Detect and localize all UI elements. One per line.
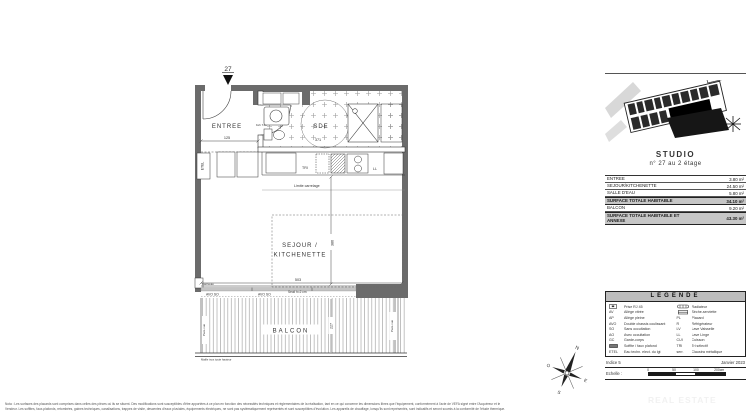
scale-segment [648, 372, 675, 376]
area-value: 24.50 m² [727, 184, 744, 189]
sde-room-label: SDE [313, 124, 328, 130]
watermark: REAL ESTATE [648, 396, 748, 405]
rj45-icon [609, 304, 624, 309]
legend-abbr: R [677, 322, 692, 326]
sejour-label-line2: KITCHENETTE [274, 253, 327, 259]
legend-body: Prise RJ 45 AV Allège vitrée AP Allège p… [606, 302, 745, 356]
left-service-units [195, 152, 258, 288]
legend-label: Placard [692, 316, 745, 320]
compass-n: N [574, 345, 580, 352]
scale-row: Echelle : 0 50 100 200cm [605, 368, 746, 380]
area-value: 34.10 m² [726, 199, 744, 204]
area-value: 9.20 m² [729, 206, 744, 211]
sejour-height-dim-line [330, 176, 333, 286]
kitchenette [262, 152, 405, 175]
sejour-label-line1: SEJOUR / [282, 243, 318, 249]
radiator-icon [677, 304, 692, 309]
legend-abbr: LV [677, 327, 692, 331]
unit-number: 27 [224, 66, 232, 73]
ll-label: LL [373, 167, 377, 171]
etel-label: ETEL [201, 162, 205, 171]
legend-label: Allège vitrée [624, 310, 677, 314]
compass-s: S [557, 390, 562, 396]
legend-abbr: AO [609, 333, 624, 337]
area-value: 3.80 m² [729, 177, 744, 182]
legend-abbr: serr. [677, 350, 692, 354]
legend-abbr: AP [609, 316, 624, 320]
legend-abbr: GC [609, 338, 624, 342]
sejour-dashed-zone [272, 215, 403, 287]
legend-label: Radiateur [692, 305, 745, 309]
caniveau-label: Caniveau [202, 282, 214, 286]
area-label: BALCON [607, 206, 625, 211]
compass-rose: N S E O [538, 337, 598, 402]
tri-label: TRI [302, 166, 308, 170]
disclaimer-line2: Vendeur. Les soffites, faux-plafonds, re… [5, 407, 650, 412]
table-row: SEJOUR/KITCHENETTE 24.50 m² [605, 183, 746, 190]
legend-label: Allège pleine [624, 316, 677, 320]
legend-item: ETEL Eau techn. elect. du lgt [609, 349, 677, 355]
entrance-arrow-icon [223, 75, 233, 85]
legend-abbr: PL [677, 316, 692, 320]
washbasin [264, 107, 289, 125]
scale-bar: 0 50 100 200cm [648, 372, 730, 376]
sejour-width-dim: 503 [295, 278, 301, 282]
entree-dim: 125 [224, 136, 230, 140]
legend-label: Eau techn. elect. du lgt [624, 350, 677, 354]
scale-tick: 50 [672, 368, 676, 372]
legend-label: Avec occultation [624, 333, 677, 337]
shower-shelf [381, 104, 402, 142]
area-value: 43.30 m² [726, 216, 744, 221]
legend-abbr: CUI [677, 338, 692, 342]
balcon-dim: 227 [330, 323, 334, 329]
legend-label: Double chassis coulissant [624, 322, 677, 326]
legend-abbr: ETEL [609, 350, 624, 354]
area-label: SURFACE TOTALE HABITABLE ET ANNEXE [607, 214, 683, 223]
legend-abbr: AV [609, 310, 624, 314]
sde-alcove-units [261, 92, 302, 105]
pare-vue-right-label: Pare-vue [390, 320, 394, 333]
legend-label: Sans occultation [624, 327, 677, 331]
table-row-total: SURFACE TOTALE HABITABLE 34.10 m² [605, 197, 746, 205]
scale-tick: 100 [693, 368, 699, 372]
scale-tick: 0 [647, 368, 649, 372]
legend-abbr: AVO [609, 322, 624, 326]
unit-subtitle: n° 27 au 2 étage [605, 161, 746, 167]
sde-dim: 371 [315, 138, 321, 142]
unit-title: STUDIO [605, 150, 746, 159]
legend-title: LEGENDE [606, 292, 745, 302]
avo-so-left-label: AVO SO [206, 293, 219, 297]
legend-label: Tri sélectif [692, 344, 745, 348]
panel-top-rule [605, 73, 746, 74]
date-label: Janvier 2023 [721, 360, 745, 365]
legend-abbr: LL [677, 333, 692, 337]
site-plan-thumbnail [605, 80, 746, 146]
scale-segment [675, 372, 696, 376]
legend-label: Soffite / faux plafond [624, 344, 677, 348]
legend-label: Lave Vaisselle [692, 327, 745, 331]
shower [348, 104, 378, 142]
floorplan-page: 27 [0, 0, 750, 420]
table-row-total: SURFACE TOTALE HABITABLE ET ANNEXE 43.30… [605, 212, 746, 225]
compass-o: O [546, 363, 552, 369]
sejour-height-dim: 386 [331, 240, 335, 246]
maille-inox-label: Maille inox toute hauteur [201, 358, 232, 362]
area-value: 5.80 m² [729, 191, 744, 196]
info-panel: STUDIO n° 27 au 2 étage ENTREE 3.80 m² S… [605, 70, 746, 380]
avo-so-right-label: AVO SO [258, 293, 271, 297]
legend-abbr: TRI [677, 344, 692, 348]
legend-left-column: Prise RJ 45 AV Allège vitrée AP Allège p… [609, 304, 677, 354]
compass-e: E [583, 378, 588, 384]
legend: LEGENDE Prise RJ 45 AV Allège vitrée AP [605, 291, 746, 357]
legend-label: Sèche-serviette [692, 310, 745, 314]
legend-label: Prise RJ 45 [624, 305, 677, 309]
legend-label: Réfrigérateur [692, 322, 745, 326]
seuil-label: Seuil h=2 cm [288, 290, 307, 294]
echelle-label: Echelle : [606, 371, 622, 376]
legend-label: Garde-corps [624, 338, 677, 342]
legend-label: Lave Linge [692, 333, 745, 337]
legend-right-column: Radiateur Sèche-serviette PL Placard R [677, 304, 745, 354]
entree-room-label: ENTREE [212, 124, 242, 130]
area-label: SURFACE TOTALE HABITABLE [607, 199, 673, 204]
table-row: SALLE D'EAU 5.80 m² [605, 190, 746, 197]
scale-segment [696, 372, 726, 376]
indice-label: Indice 5 [606, 360, 621, 365]
areas-table: ENTREE 3.80 m² SEJOUR/KITCHENETTE 24.50 … [605, 175, 746, 225]
entrance-marker: 27 [222, 66, 234, 85]
soffite-icon [609, 344, 624, 348]
area-label: SEJOUR/KITCHENETTE [607, 184, 657, 189]
pare-vue-left-label: Pare-vue [202, 324, 206, 337]
legend-item: serr. Claustra métallique [677, 349, 745, 355]
scale-tick: 200cm [714, 368, 724, 372]
disclaimer-note: Nota : Les surfaces des placards sont co… [5, 402, 650, 412]
window-band [201, 286, 356, 297]
area-label: ENTREE [607, 177, 625, 182]
limite-carrelage-label: Limite carrelage [294, 184, 320, 188]
legend-abbr: SO [609, 327, 624, 331]
table-row: ENTREE 3.80 m² [605, 176, 746, 183]
towel-radiator-icon [677, 310, 692, 315]
balcon-label: BALCON [273, 329, 310, 335]
legend-label: Claustra métallique [692, 350, 745, 354]
table-row: BALCON 9.20 m² [605, 205, 746, 212]
area-label: SALLE D'EAU [607, 191, 635, 196]
legend-label: Cuisson [692, 338, 745, 342]
